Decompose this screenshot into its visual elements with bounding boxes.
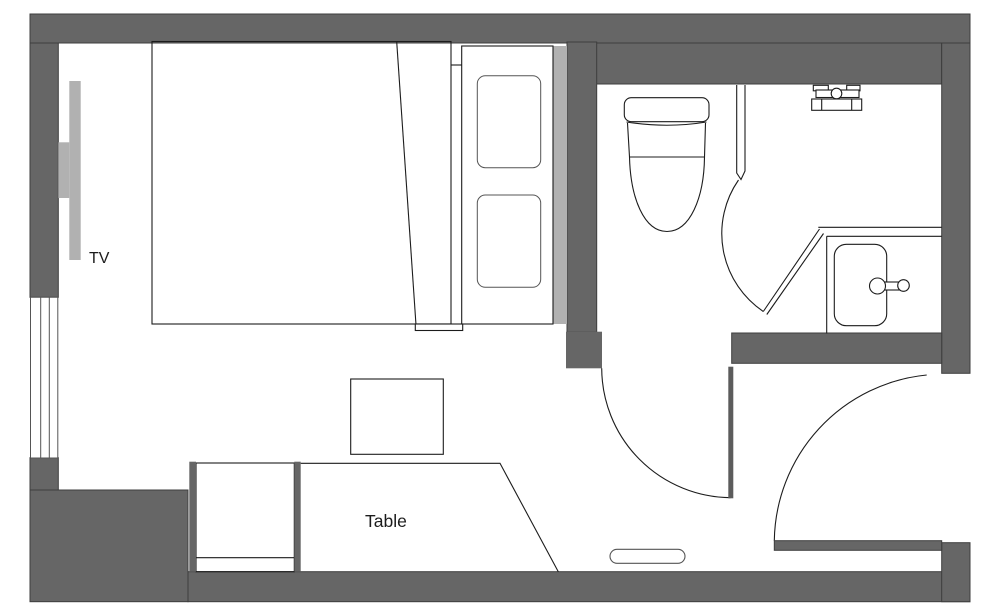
basin-faucet-knob <box>898 280 910 292</box>
left-wall-upper <box>30 43 58 297</box>
floor-plan-canvas: TV Table <box>0 0 1000 614</box>
toilet-lid-curve <box>627 122 707 125</box>
toilet-tank <box>624 98 709 122</box>
bathroom-door-arc <box>722 180 764 312</box>
desk-side-panel <box>294 462 300 572</box>
tv <box>58 81 80 260</box>
bathroom-door-leaf <box>763 229 823 315</box>
basin-faucet <box>870 278 886 294</box>
table-outline <box>301 463 559 571</box>
hall-door <box>602 367 734 499</box>
floor-plan: TV Table <box>0 0 1000 614</box>
stool <box>351 379 444 454</box>
vanity <box>818 227 941 333</box>
bed <box>152 42 567 331</box>
tv-bracket <box>58 142 69 198</box>
right-wall <box>942 43 970 373</box>
bathroom-door <box>722 85 824 315</box>
partition-pier <box>566 332 602 369</box>
entrance-door <box>774 375 941 550</box>
mixer-body <box>812 99 862 110</box>
bed-headboard-panel <box>462 46 553 324</box>
bathroom-bottom-wall <box>732 333 942 363</box>
bathroom-top-wall <box>567 43 942 84</box>
pillow <box>477 195 540 287</box>
bed-foot-trim <box>415 324 462 331</box>
desk-cabinet <box>196 463 294 572</box>
bottom-wall <box>188 572 970 602</box>
bathroom-door-jamb <box>737 85 745 180</box>
toilet <box>624 98 709 232</box>
basin-faucet-stem <box>884 282 899 290</box>
toilet-bowl <box>630 157 705 232</box>
table-label: Table <box>365 511 407 531</box>
tv-screen <box>69 81 80 260</box>
hall-door-arc <box>602 368 731 497</box>
window <box>31 297 58 458</box>
hall-door-leaf <box>728 367 733 499</box>
pillow <box>477 76 540 168</box>
tv-label: TV <box>89 250 110 267</box>
bed-duvet-fold <box>397 42 416 325</box>
entry-step <box>610 549 685 563</box>
corner-wall-block <box>30 490 188 602</box>
entrance-door-leaf <box>774 541 941 551</box>
headboard-strip <box>553 46 567 324</box>
left-wall-lower <box>30 458 58 490</box>
desk-side-panel <box>189 462 196 572</box>
shower-mixer <box>812 85 862 110</box>
partition-wall <box>567 42 597 332</box>
top-wall <box>30 14 970 43</box>
right-wall-lower <box>942 543 970 602</box>
mixer-valve <box>831 88 842 99</box>
entrance-door-arc <box>774 375 926 541</box>
toilet-seat-sides <box>628 123 706 157</box>
